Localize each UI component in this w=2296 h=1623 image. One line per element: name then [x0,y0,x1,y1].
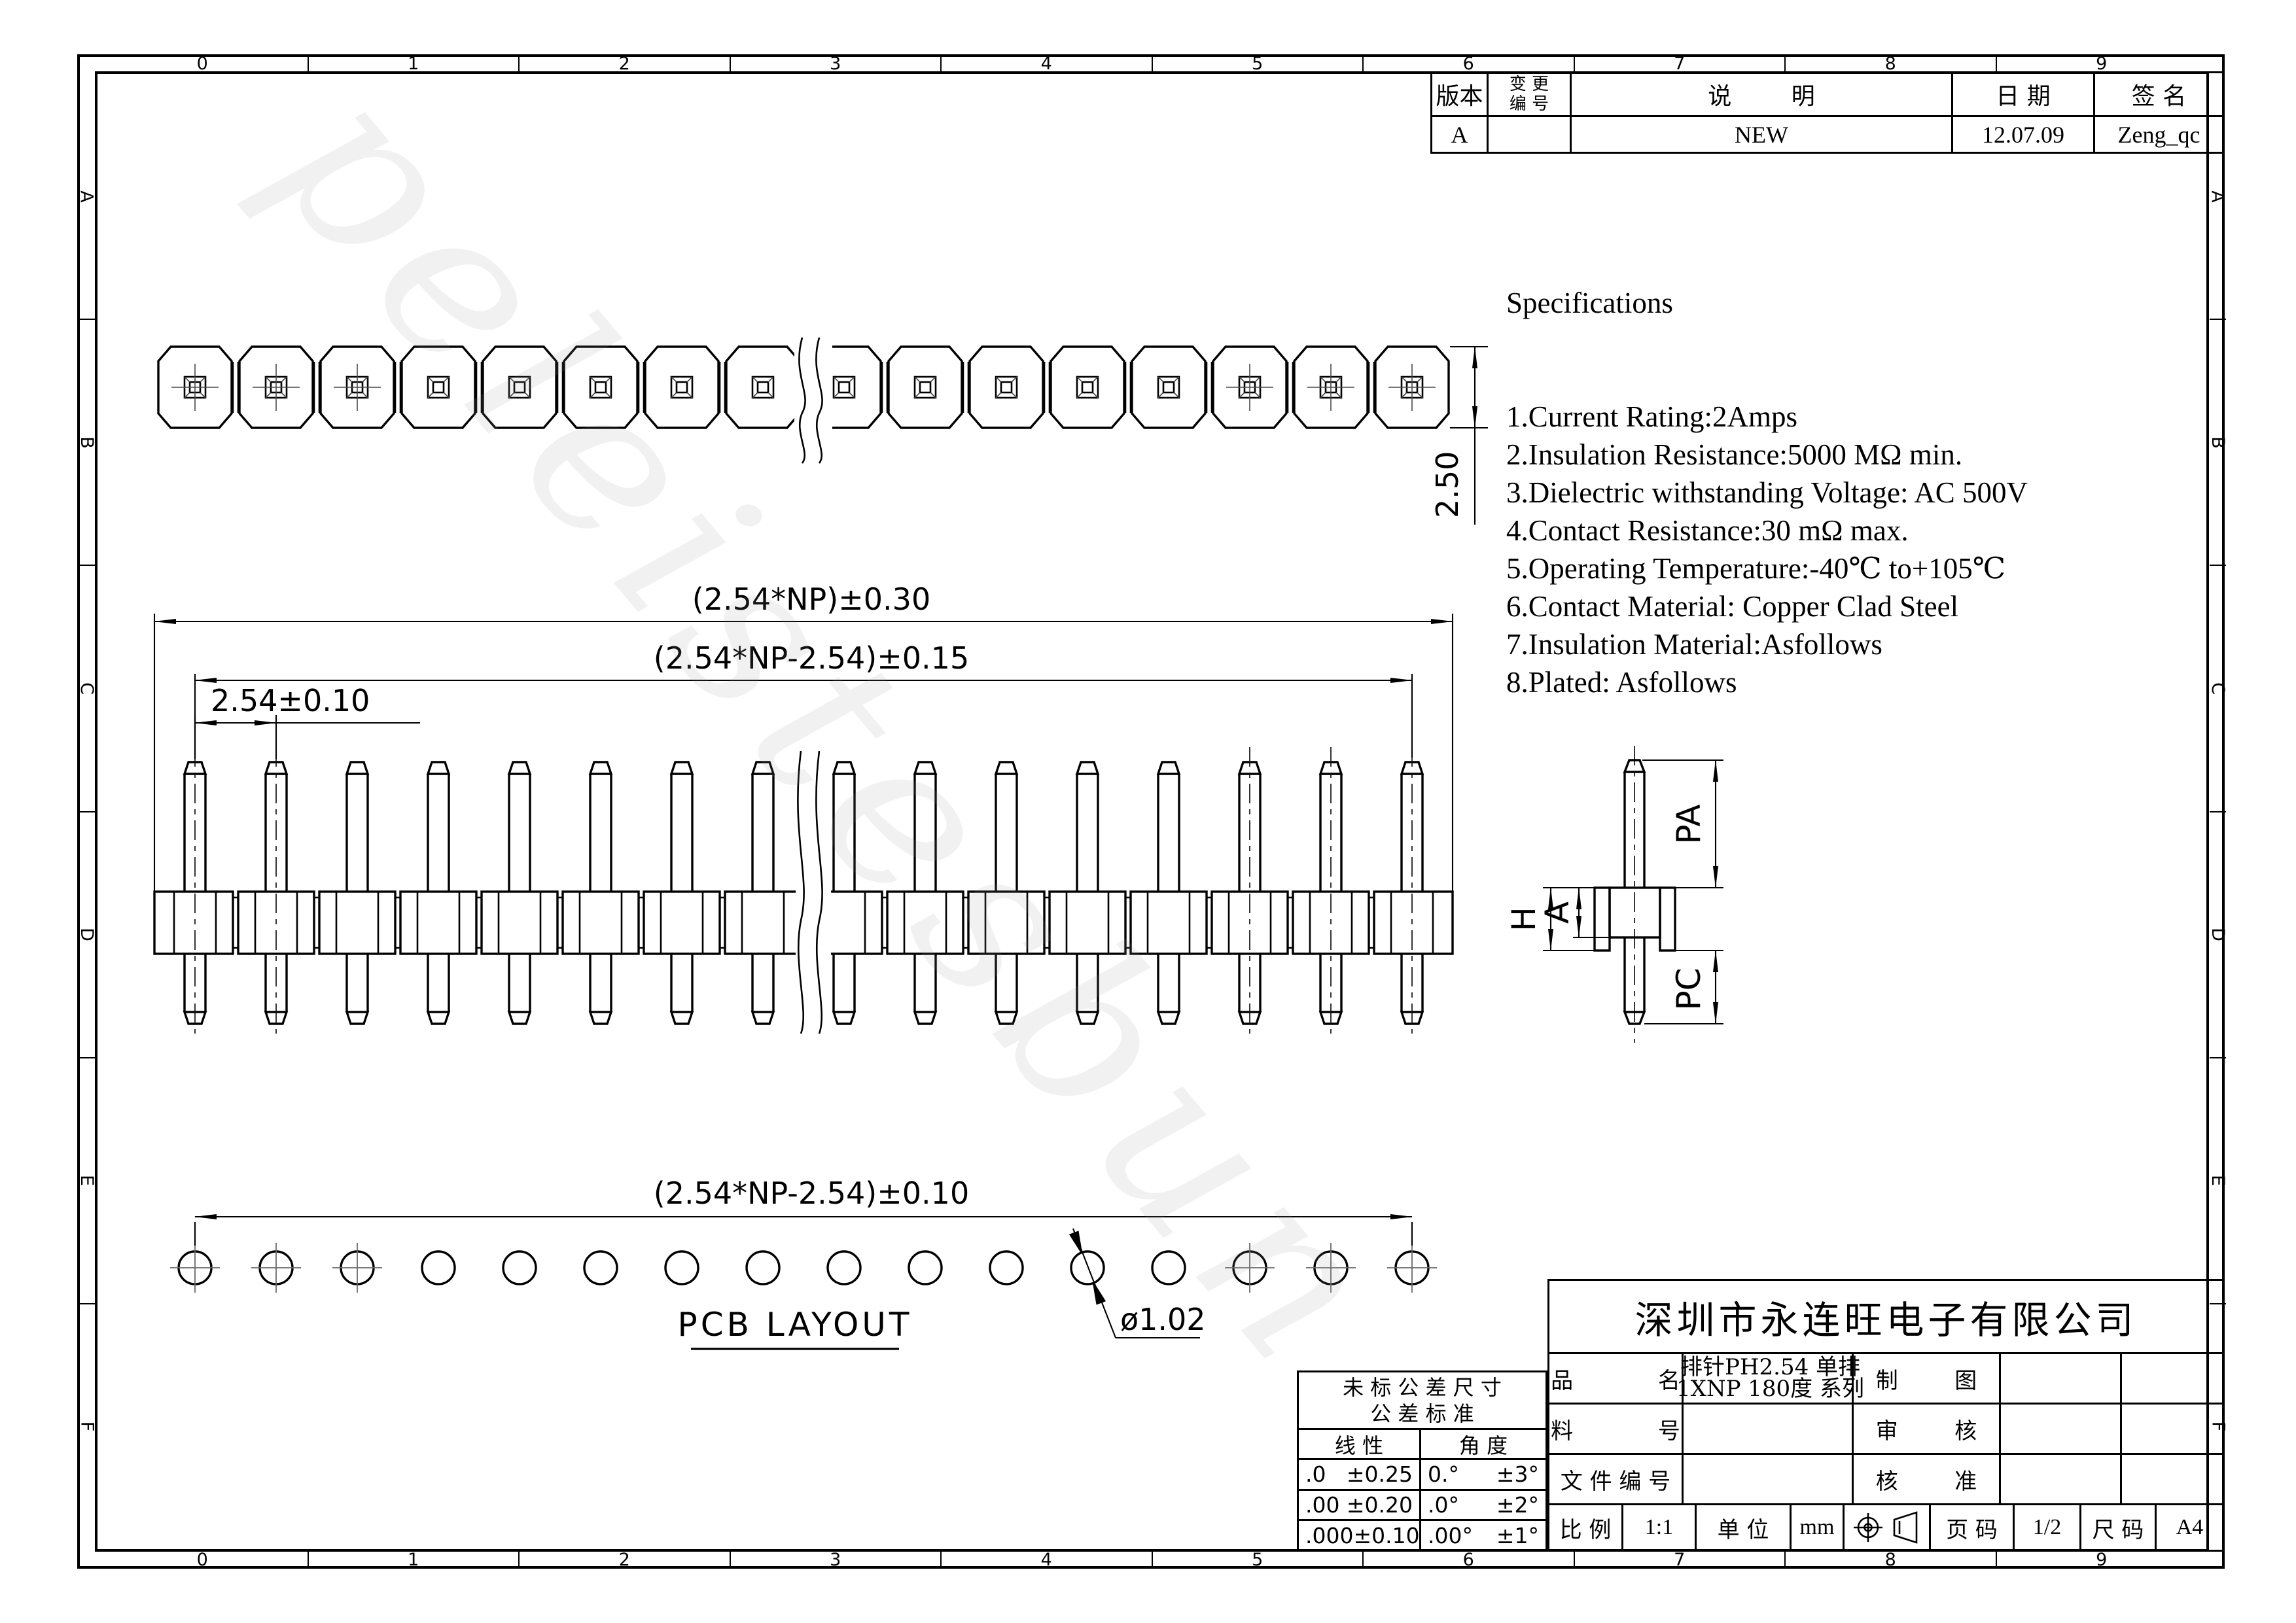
housing-octagon [645,347,718,428]
title-block: 深圳市永连旺电子有限公司 品 名 排针PH2.54 单排 1XNP 180度 系… [1547,1279,2225,1552]
housing-octagon [1051,347,1124,428]
a-dimension [1573,888,1610,937]
checked-by-extra [2122,1405,2223,1453]
zone-letter-cell: F [79,1304,95,1549]
zone-number: 3 [731,56,942,71]
revision-date: 12.07.09 [1953,117,2095,152]
tolerance-value: ±3° [1496,1461,1539,1487]
zone-letter: D [2208,928,2228,941]
pin-tip-bottom [428,1012,449,1024]
pcb-hole [503,1251,536,1284]
zone-number: 1 [309,1552,520,1567]
specifications: Specifications 1.Current Rating:2Amps2.I… [1506,208,2239,701]
pin-square-inner [1082,382,1093,393]
specification-item: 6.Contact Material: Copper Clad Steel [1506,587,2239,625]
insulator-segment [1374,892,1453,954]
insulator-segment [482,892,557,954]
tolerance-angle-cell: .00° ±1° [1421,1521,1545,1550]
revision-description: NEW [1572,117,1953,152]
zone-letter-cell: E [2210,1058,2226,1304]
pin-square-inner [1001,382,1012,393]
zone-letter: C [77,682,97,695]
pcb-hole [990,1251,1023,1284]
pin-tip-bottom [590,1012,611,1024]
title-block-row-product: 品 名 排针PH2.54 单排 1XNP 180度 系列 制 图 [1549,1354,2223,1405]
zone-letter-cell: D [2210,812,2226,1058]
overall-dimension-label: (2.54*NP)±0.30 [692,582,930,617]
pin-tip-top [590,762,611,774]
tolerance-row: .000 ±0.10 .00° ±1° [1299,1521,1545,1550]
drawn-by-extra [2122,1354,2223,1403]
zone-letter-cell: C [79,566,95,812]
zone-number: 4 [942,56,1153,71]
housing-octagon [889,347,962,428]
tolerance-value: .000 [1305,1523,1353,1548]
pin-square-inner [839,382,849,393]
tolerance-title-line1: 未 标 公 差 尺 寸 [1343,1374,1502,1401]
housing-octagon [564,347,637,428]
title-block-row-bottom: 比 例 1:1 单 位 mm 页 码 1/2 尺 码 A4 [1549,1505,2223,1550]
pcb-hole [747,1251,779,1284]
centers-dimension [195,674,1412,758]
tolerance-value: ±1° [1496,1523,1539,1548]
revision-change-no [1489,117,1572,152]
pcb-hole [422,1251,455,1284]
pin-tip-top [428,762,449,774]
page-label: 页 码 [1931,1505,2015,1550]
zone-number: 7 [1575,1552,1786,1567]
pin-tip-top [915,762,936,774]
pin-tip-bottom [915,1012,936,1024]
pin-tip-bottom [1077,1012,1098,1024]
pcb-layout-drawing: (2.54*NP-2.54)±0.10 ø1.02 PCB LAYOUT [118,1171,1531,1387]
tolerance-col-linear: 线 性 [1299,1430,1421,1458]
specifications-title: Specifications [1506,284,2239,322]
pin-tip-bottom [1158,1012,1179,1024]
pcb-span-dimension [195,1217,1412,1246]
title-block-row-docno: 文 件 编 号 核 准 [1549,1455,2223,1505]
zone-number: 8 [1786,1552,1997,1567]
pa-label: PA [1670,804,1708,844]
drawing-sheet: 0123456789 0123456789 ABCDEF ABCDEF 版本 变… [0,0,2296,1623]
break-mask [796,747,831,1039]
tolerance-value: .00° [1428,1523,1473,1548]
tolerance-linear-cell: .00 ±0.20 [1299,1491,1421,1520]
zone-number: 8 [1786,56,1997,71]
tolerance-title: 未 标 公 差 尺 寸 公 差 标 准 [1299,1372,1545,1430]
zone-letter: B [77,436,97,449]
pin-square-inner [1163,382,1174,393]
projection-symbol-cell [1845,1505,1931,1550]
tolerance-angle-cell: .0° ±2° [1421,1491,1545,1520]
specification-item: 7.Insulation Material:Asfollows [1506,625,2239,663]
pin-square-inner [677,382,687,393]
revision-col-change-line2: 编 号 [1510,94,1549,114]
zone-band-bottom: 0123456789 [97,1552,2206,1567]
document-no-label: 文 件 编 号 [1549,1455,1684,1503]
insulator-segment [968,892,1044,954]
pin-tip-top [996,762,1017,774]
zone-number: 6 [1364,1552,1575,1567]
housing-octagon [1132,347,1205,428]
pcb-layout-title: PCB LAYOUT [678,1306,913,1344]
insulator-segment [1050,892,1125,954]
pin-tip-top [1158,762,1179,774]
zone-letter: A [2208,190,2228,202]
tolerance-value: ±2° [1496,1492,1539,1518]
revision-table: 版本 变 更 编 号 说 明 日 期 签 名 A NEW 12.07.09 Ze… [1430,71,2225,154]
tolerance-title-line2: 公 差 标 准 [1370,1401,1474,1427]
tolerance-row: .00 ±0.20 .0° ±2° [1299,1491,1545,1522]
document-no-value [1684,1455,1854,1503]
tolerance-value: .00 [1305,1492,1339,1518]
insulator-segment [319,892,395,954]
zone-number: 2 [520,1552,731,1567]
insulator-segment [400,892,476,954]
zone-number: 2 [520,56,731,71]
revision-header-row: 版本 变 更 编 号 说 明 日 期 签 名 [1432,73,2223,117]
tolerance-header: 线 性 角 度 [1299,1430,1545,1460]
tolerance-col-angle: 角 度 [1421,1430,1545,1458]
unit-value: mm [1792,1505,1845,1550]
pin-tip-bottom [834,1012,855,1024]
pin-tip-top [1077,762,1098,774]
specification-item: 3.Dielectric withstanding Voltage: AC 50… [1506,474,2239,512]
pin-tip-bottom [671,1012,692,1024]
tolerance-row: .0 ±0.25 0.° ±3° [1299,1460,1545,1491]
centers-dimension-label: (2.54*NP-2.54)±0.15 [654,640,969,676]
housing-octagon [402,347,475,428]
zone-number: 6 [1364,56,1575,71]
zone-band-left: ABCDEF [79,74,95,1549]
specification-item: 5.Operating Temperature:-40℃ to+105℃ [1506,550,2239,587]
revision-version: A [1432,117,1489,152]
approved-by-value [2001,1455,2122,1503]
revision-col-signature: 签 名 [2095,73,2223,115]
zone-letter-cell: A [79,74,95,320]
zone-number: 5 [1153,56,1364,71]
material-no-value [1684,1405,1854,1453]
scale-label: 比 例 [1549,1505,1623,1550]
material-no-label: 料 号 [1549,1405,1684,1453]
pin-tip-top [834,762,855,774]
tolerance-value: ±0.20 [1347,1492,1413,1518]
page-value: 1/2 [2015,1505,2081,1550]
insulator-segment [644,892,720,954]
zone-number: 7 [1575,56,1786,71]
zone-letter: F [77,1422,97,1432]
revision-col-change-no: 变 更 编 号 [1489,73,1572,115]
front-view-drawing: (2.54*NP)±0.30 (2.54*NP-2.54)±0.15 2.54±… [118,576,1531,1073]
checked-by-label: 审 核 [1854,1405,2001,1453]
revision-col-description: 说 明 [1572,73,1953,115]
pin-square-inner [920,382,930,393]
zone-band-top: 0123456789 [97,56,2206,71]
pitch-dimension [195,715,420,759]
approved-by-label: 核 准 [1854,1455,2001,1503]
side-view-drawing: PA H A PC [1505,720,1799,1073]
tolerance-angle-cell: 0.° ±3° [1421,1460,1545,1489]
checked-by-value [2001,1405,2122,1453]
pcb-span-dimension-label: (2.54*NP-2.54)±0.10 [654,1176,969,1211]
pcb-hole [665,1251,698,1284]
pin-tip-top [509,762,530,774]
drawn-by-value [2001,1354,2122,1403]
specification-item: 4.Contact Resistance:30 mΩ max. [1506,512,2239,550]
zone-number: 3 [731,1552,942,1567]
scale-value: 1:1 [1623,1505,1697,1550]
pin-tip-top [347,762,368,774]
size-label: 尺 码 [2081,1505,2157,1550]
pin-square-inner [433,382,444,393]
zone-letter-cell: E [79,1058,95,1304]
h-label: H [1505,907,1543,932]
zone-number: 0 [97,56,309,71]
tolerance-linear-cell: .0 ±0.25 [1299,1460,1421,1489]
insulator-segment [563,892,639,954]
pin-tip-top [752,762,773,774]
pcb-hole [828,1251,860,1284]
drawn-by-label: 制 图 [1854,1354,2001,1403]
zone-letter: A [77,190,97,202]
revision-row: A NEW 12.07.09 Zeng_qc [1432,117,2223,152]
title-block-row-material: 料 号 审 核 [1549,1405,2223,1455]
insulator-segment [887,892,963,954]
pcb-hole [584,1251,617,1284]
pcb-hole [909,1251,942,1284]
third-angle-projection-icon [1848,1509,1926,1546]
zone-number: 4 [942,1552,1153,1567]
revision-col-change-line1: 变 更 [1510,75,1549,94]
tolerance-value: .0 [1305,1461,1326,1487]
product-name-label: 品 名 [1549,1354,1684,1403]
height-dimension-label: 2.50 [1430,451,1465,518]
zone-number: 0 [97,1552,309,1567]
product-name-line2: 1XNP 180度 系列 [1676,1378,1864,1400]
zone-number: 9 [1997,1552,2207,1567]
tolerance-value: .0° [1428,1492,1459,1518]
a-label: A [1538,901,1576,924]
insulator-segment [1131,892,1207,954]
tolerance-table: 未 标 公 差 尺 寸 公 差 标 准 线 性 角 度 .0 ±0.25 0.°… [1297,1370,1547,1552]
specification-item: 2.Insulation Resistance:5000 MΩ min. [1506,436,2239,474]
pin-tip-bottom [996,1012,1017,1024]
pin-tip-bottom [509,1012,530,1024]
pin-tip-bottom [752,1012,773,1024]
housing-octagon [970,347,1043,428]
unit-label: 单 位 [1697,1505,1792,1550]
revision-col-version: 版本 [1432,73,1489,115]
insulator-segment [725,892,801,954]
top-view-drawing: 2.50 [118,307,1531,550]
pcb-hole [1071,1251,1104,1284]
pcb-hole [1152,1251,1185,1284]
tolerance-linear-cell: .000 ±0.10 [1299,1521,1421,1550]
zone-letter-cell: D [79,812,95,1058]
zone-number: 5 [1153,1552,1364,1567]
zone-letter-cell: B [79,320,95,566]
pin-square-inner [514,382,525,393]
housing-octagon [483,347,556,428]
revision-col-date: 日 期 [1953,73,2095,115]
pin-tip-top [671,762,692,774]
size-value: A4 [2157,1505,2223,1550]
product-name-value: 排针PH2.54 单排 1XNP 180度 系列 [1684,1354,1854,1403]
pc-label: PC [1670,968,1708,1010]
pin-tip-bottom [347,1012,368,1024]
pin-square-inner [595,382,606,393]
zone-letter: E [2208,1175,2228,1186]
specification-item: 1.Current Rating:2Amps [1506,398,2239,436]
zone-number: 1 [309,56,520,71]
company-name: 深圳市永连旺电子有限公司 [1549,1281,2223,1354]
zone-number: 9 [1997,56,2207,71]
tolerance-value: 0.° [1428,1461,1459,1487]
zone-letter: D [77,928,97,941]
zone-letter: E [77,1175,97,1186]
pitch-dimension-label: 2.54±0.10 [211,683,370,718]
hole-diameter-label: ø1.02 [1120,1302,1206,1337]
tolerance-value: ±0.25 [1347,1461,1413,1487]
revision-signature: Zeng_qc [2095,117,2223,152]
tolerance-value: ±0.10 [1353,1523,1419,1548]
approved-by-extra [2122,1455,2223,1503]
insulator-segment [154,892,233,954]
specification-item: 8.Plated: Asfollows [1506,663,2239,701]
pin-square-inner [758,382,768,393]
housing-octagon [726,347,800,428]
